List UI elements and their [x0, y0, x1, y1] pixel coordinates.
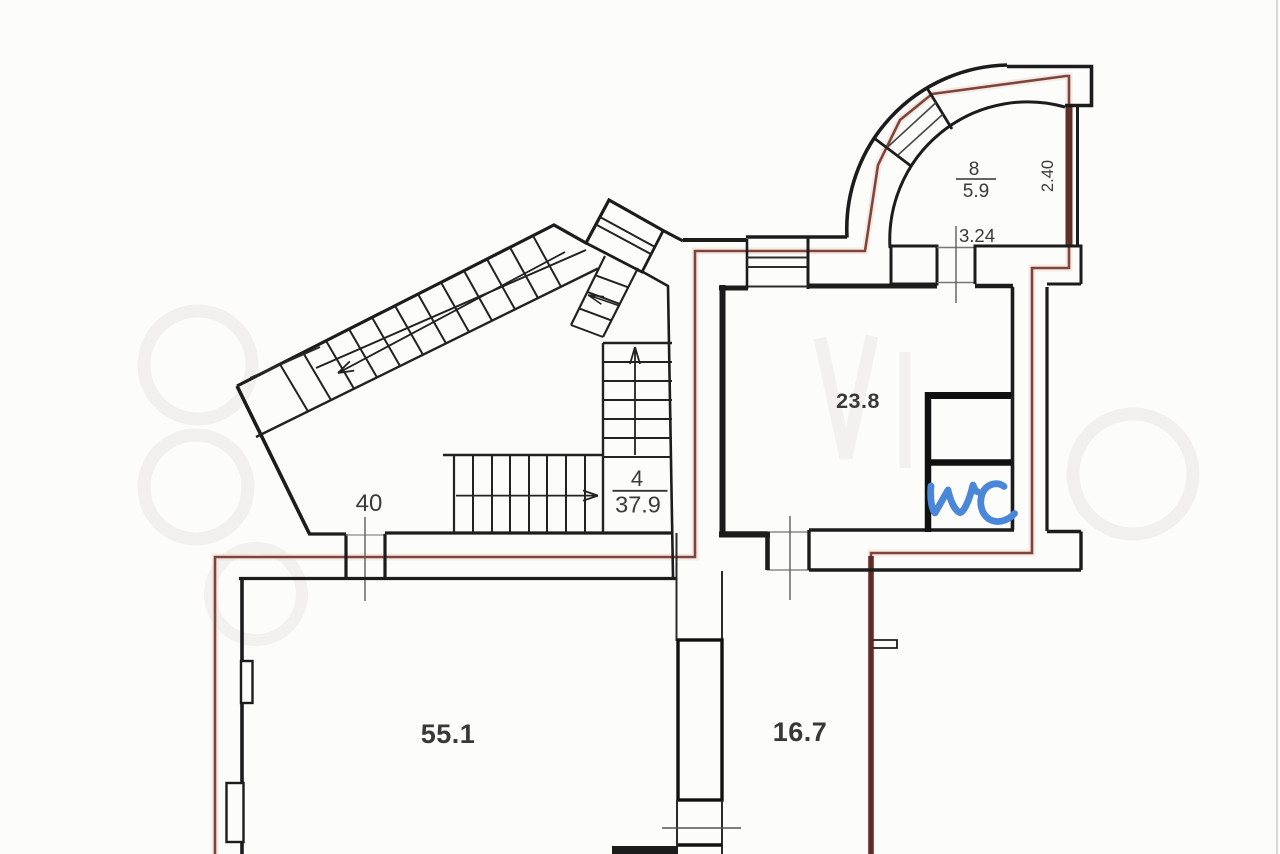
- svg-text:40: 40: [356, 490, 383, 517]
- svg-text:37.9: 37.9: [615, 492, 661, 518]
- svg-text:4: 4: [631, 466, 643, 491]
- svg-text:23.8: 23.8: [836, 389, 880, 413]
- svg-text:3.24: 3.24: [959, 225, 995, 246]
- svg-text:16.7: 16.7: [773, 717, 828, 747]
- svg-text:5.9: 5.9: [963, 181, 989, 202]
- svg-text:8: 8: [969, 159, 980, 180]
- svg-text:55.1: 55.1: [421, 719, 476, 749]
- svg-text:2.40: 2.40: [1039, 160, 1057, 192]
